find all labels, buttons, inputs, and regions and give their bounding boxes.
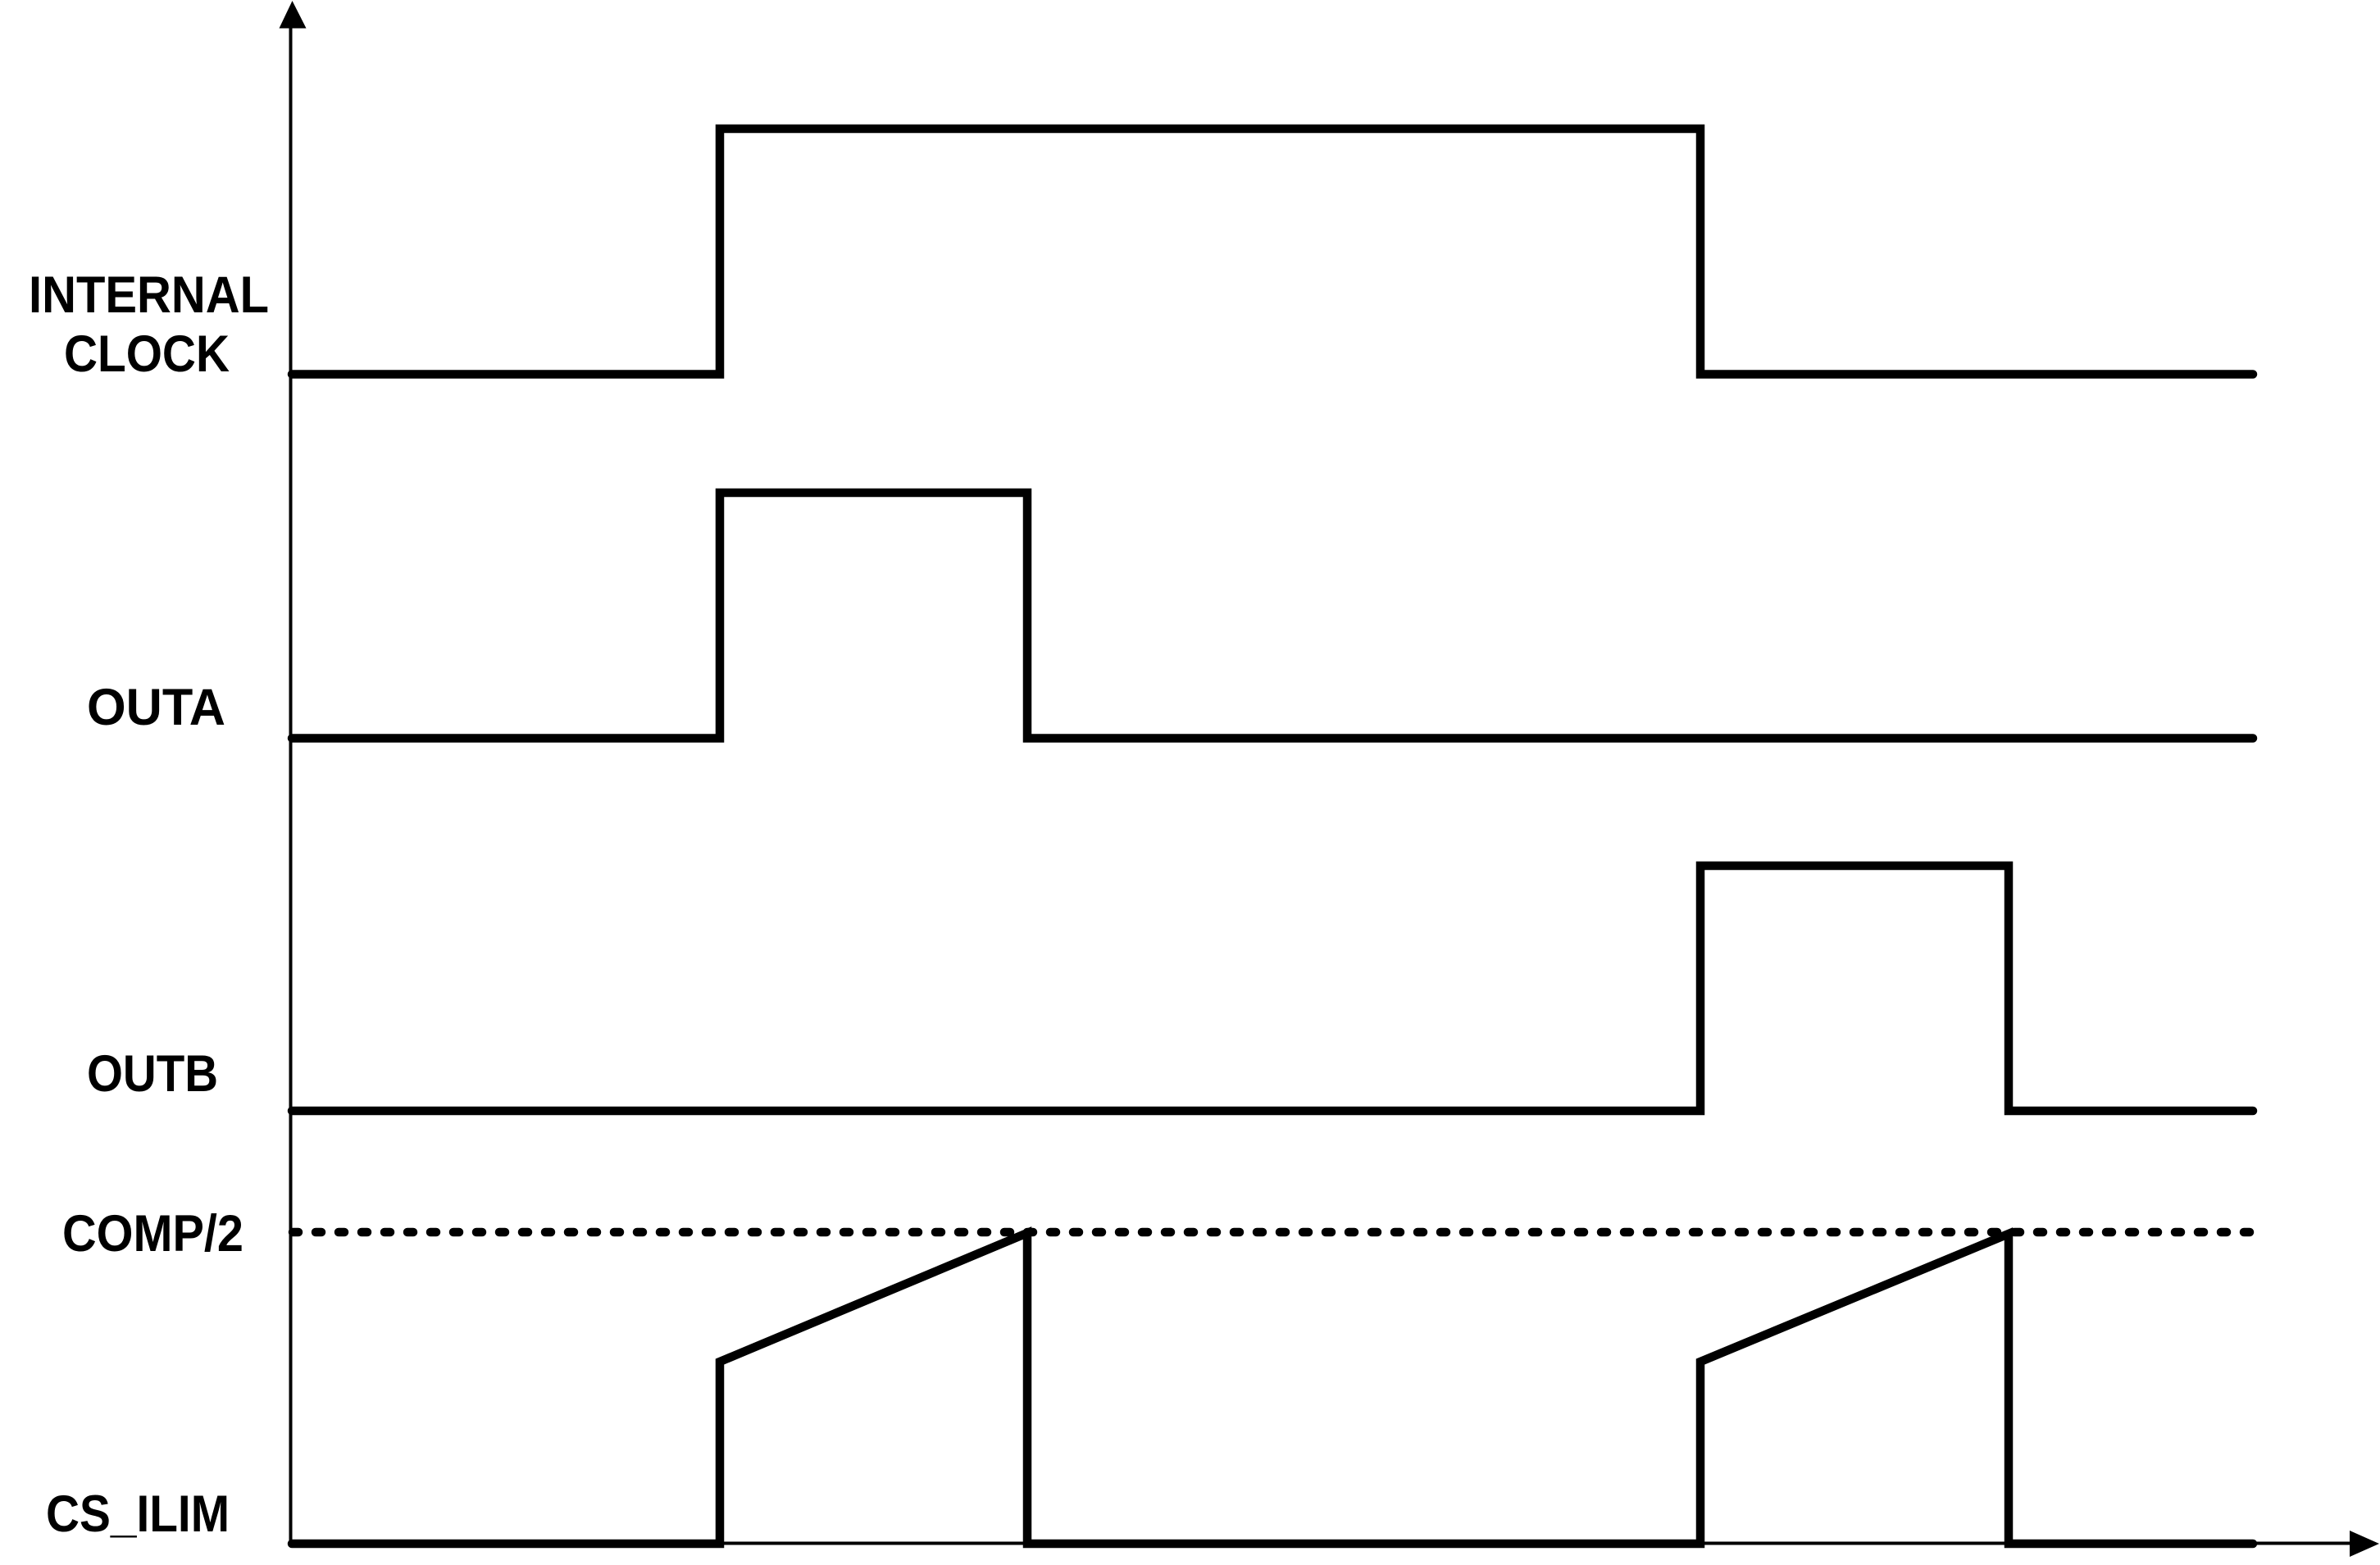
svg-text:OUTB: OUTB — [87, 1045, 218, 1103]
svg-text:OUTA: OUTA — [87, 679, 225, 736]
svg-text:CLOCK: CLOCK — [64, 325, 230, 383]
svg-text:CS_ILIM: CS_ILIM — [46, 1485, 230, 1543]
svg-text:INTERNAL: INTERNAL — [29, 266, 269, 324]
svg-text:COMP/2: COMP/2 — [62, 1205, 243, 1262]
